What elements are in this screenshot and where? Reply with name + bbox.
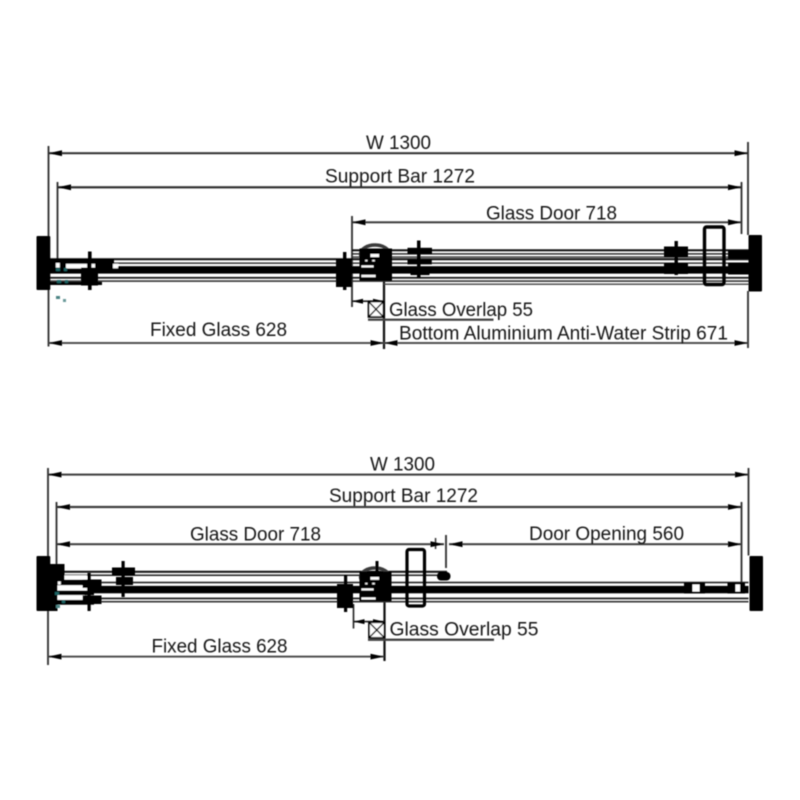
svg-text:W 1300: W 1300 [370, 455, 435, 476]
svg-text:Fixed Glass 628: Fixed Glass 628 [150, 320, 287, 341]
svg-text:W 1300: W 1300 [366, 133, 431, 154]
svg-text:Support Bar 1272: Support Bar 1272 [325, 167, 475, 188]
svg-text:Bottom Aluminium Anti-Water St: Bottom Aluminium Anti-Water Strip 671 [399, 324, 728, 345]
svg-text:Glass Overlap 55: Glass Overlap 55 [389, 300, 533, 321]
svg-text:Support Bar 1272: Support Bar 1272 [329, 486, 478, 507]
svg-text:Fixed Glass 628: Fixed Glass 628 [152, 637, 288, 658]
svg-text:Glass Door 718: Glass Door 718 [190, 525, 321, 546]
svg-text:Glass Overlap 55: Glass Overlap 55 [390, 620, 539, 641]
svg-text:Door Opening 560: Door Opening 560 [529, 524, 684, 545]
svg-text:Glass Door 718: Glass Door 718 [486, 204, 617, 225]
